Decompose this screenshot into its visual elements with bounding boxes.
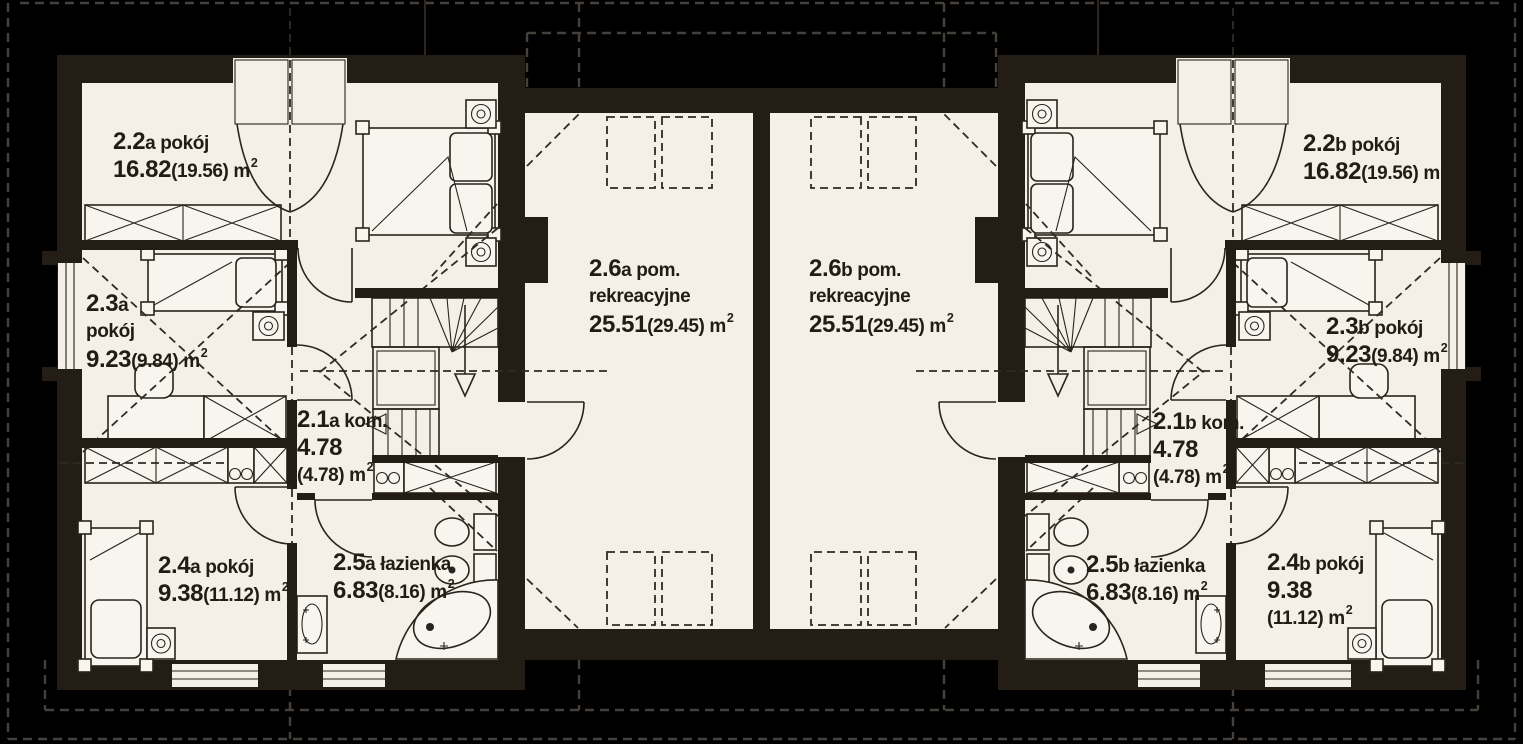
room-label-text: b łazienka: [1118, 556, 1205, 577]
room-label-2-5a: 2.5a łazienka6.83(8.16) m2: [333, 549, 454, 605]
room-label-text: (9.84) m: [1371, 346, 1440, 367]
room-label-line: (4.78) m2: [297, 462, 387, 490]
room-label-2-2a: 2.2a pokój16.82(19.56) m2: [113, 128, 257, 184]
room-label-text: a pokój: [190, 557, 254, 578]
room-label-2-4b: 2.4b pokój9.38(11.12) m2: [1267, 549, 1364, 633]
room-label-line: pokój: [86, 318, 207, 346]
room-label-line: 2.3b pokój: [1326, 313, 1447, 341]
room-label-text: pokój: [86, 321, 135, 342]
room-label-text: 2.5: [1086, 551, 1118, 578]
room-label-line: 25.51(29.45) m2: [589, 311, 733, 339]
room-label-text: 2: [1223, 462, 1230, 476]
room-label-text: (11.12) m: [1267, 608, 1345, 629]
room-label-line: rekreacyjne: [809, 283, 953, 311]
room-label-text: 9.23: [1326, 341, 1371, 368]
room-label-text: 16.82: [1303, 158, 1361, 185]
room-label-line: 2.5b łazienka: [1086, 551, 1207, 579]
room-label-line: 2.1b kom.: [1153, 408, 1244, 436]
room-label-line: (4.78) m2: [1153, 464, 1244, 492]
room-label-text: b pokój: [1299, 554, 1364, 575]
room-label-text: 2.5: [333, 549, 365, 576]
room-label-text: a pom.: [621, 260, 680, 281]
room-label-line: (11.12) m2: [1267, 605, 1364, 633]
room-label-line: 9.23(9.84) m2: [1326, 341, 1447, 369]
room-label-text: 4.78: [1153, 436, 1198, 463]
room-label-text: (8.16) m: [378, 582, 447, 603]
room-label-text: 9.38: [1267, 577, 1312, 604]
room-label-text: 2.4: [158, 552, 190, 579]
room-label-line: 2.4a pokój: [158, 552, 288, 580]
room-label-text: 2.1: [1153, 408, 1185, 435]
room-label-line: 9.38(11.12) m2: [158, 580, 288, 608]
room-label-text: 2: [251, 156, 258, 170]
room-label-text: 6.83: [333, 577, 378, 604]
room-label-line: rekreacyjne: [589, 283, 733, 311]
room-label-text: (19.56) m: [171, 161, 250, 182]
room-label-2-5b: 2.5b łazienka6.83(8.16) m2: [1086, 551, 1207, 607]
room-label-text: (9.84) m: [131, 351, 200, 372]
room-label-2-2b: 2.2b pokój16.82(19.56) m2: [1303, 130, 1447, 186]
room-label-text: 6.83: [1086, 579, 1131, 606]
room-label-text: a kom.: [329, 411, 387, 432]
room-label-text: 2: [1441, 158, 1448, 172]
room-label-text: rekreacyjne: [589, 286, 690, 307]
room-label-line: 16.82(19.56) m2: [113, 156, 257, 184]
room-label-text: 2: [1346, 603, 1353, 617]
room-label-text: b pokój: [1335, 135, 1400, 156]
room-label-text: 2: [1441, 341, 1448, 355]
room-label-text: 2.6: [589, 255, 621, 282]
room-label-line: 2.6b pom.: [809, 255, 953, 283]
room-label-line: 4.78: [297, 434, 387, 462]
room-label-text: 16.82: [113, 156, 171, 183]
room-label-line: 2.1a kom.: [297, 406, 387, 434]
room-label-line: 16.82(19.56) m2: [1303, 158, 1447, 186]
room-label-line: 9.23(9.84) m2: [86, 346, 207, 374]
room-label-text: a: [118, 295, 128, 316]
room-label-text: (4.78) m: [297, 465, 366, 486]
room-label-text: (19.56) m: [1361, 163, 1440, 184]
floor-plan-page: 2.2a pokój16.82(19.56) m22.3apokój9.23(9…: [0, 0, 1523, 744]
room-label-line: 25.51(29.45) m2: [809, 311, 953, 339]
room-label-2-6b: 2.6b pom.rekreacyjne25.51(29.45) m2: [809, 255, 953, 339]
room-label-line: 2.2b pokój: [1303, 130, 1447, 158]
room-label-text: 2: [367, 460, 374, 474]
room-label-2-1b: 2.1b kom.4.78(4.78) m2: [1153, 408, 1244, 492]
room-label-text: 2.1: [297, 406, 329, 433]
room-label-line: 9.38: [1267, 577, 1364, 605]
room-label-text: (29.45) m: [867, 316, 946, 337]
room-label-text: rekreacyjne: [809, 286, 910, 307]
room-label-text: 25.51: [809, 311, 867, 338]
room-label-line: 2.4b pokój: [1267, 549, 1364, 577]
room-label-text: 2: [1201, 579, 1208, 593]
room-label-text: a łazienka: [365, 554, 451, 575]
room-label-text: (11.12) m: [203, 585, 281, 606]
room-label-2-3a: 2.3apokój9.23(9.84) m2: [86, 290, 207, 374]
room-label-text: b pokój: [1358, 318, 1423, 339]
room-label-text: 2.6: [809, 255, 841, 282]
room-label-text: 2: [947, 311, 954, 325]
room-label-text: 9.38: [158, 580, 203, 607]
room-label-text: b kom.: [1185, 413, 1244, 434]
room-label-text: (8.16) m: [1131, 584, 1200, 605]
room-label-text: 2: [448, 577, 455, 591]
room-label-text: b pom.: [841, 260, 901, 281]
room-label-line: 4.78: [1153, 436, 1244, 464]
room-label-text: 4.78: [297, 434, 342, 461]
room-label-text: (29.45) m: [647, 316, 726, 337]
room-label-text: 9.23: [86, 346, 131, 373]
room-label-text: 2.2: [1303, 130, 1335, 157]
room-label-text: 25.51: [589, 311, 647, 338]
room-label-2-4a: 2.4a pokój9.38(11.12) m2: [158, 552, 288, 608]
room-label-2-3b: 2.3b pokój9.23(9.84) m2: [1326, 313, 1447, 369]
room-label-line: 2.3a: [86, 290, 207, 318]
room-label-text: (4.78) m: [1153, 467, 1222, 488]
room-label-text: 2.4: [1267, 549, 1299, 576]
room-label-text: 2.2: [113, 128, 145, 155]
room-label-line: 6.83(8.16) m2: [1086, 579, 1207, 607]
room-label-line: 2.6a pom.: [589, 255, 733, 283]
room-label-text: a pokój: [145, 133, 209, 154]
room-label-text: 2: [201, 346, 208, 360]
room-label-line: 2.5a łazienka: [333, 549, 454, 577]
room-label-2-1a: 2.1a kom.4.78(4.78) m2: [297, 406, 387, 490]
room-label-text: 2.3: [86, 290, 118, 317]
room-label-2-6a: 2.6a pom.rekreacyjne25.51(29.45) m2: [589, 255, 733, 339]
room-label-line: 6.83(8.16) m2: [333, 577, 454, 605]
room-label-text: 2: [282, 580, 289, 594]
room-label-line: 2.2a pokój: [113, 128, 257, 156]
room-label-text: 2: [727, 311, 734, 325]
room-label-text: 2.3: [1326, 313, 1358, 340]
